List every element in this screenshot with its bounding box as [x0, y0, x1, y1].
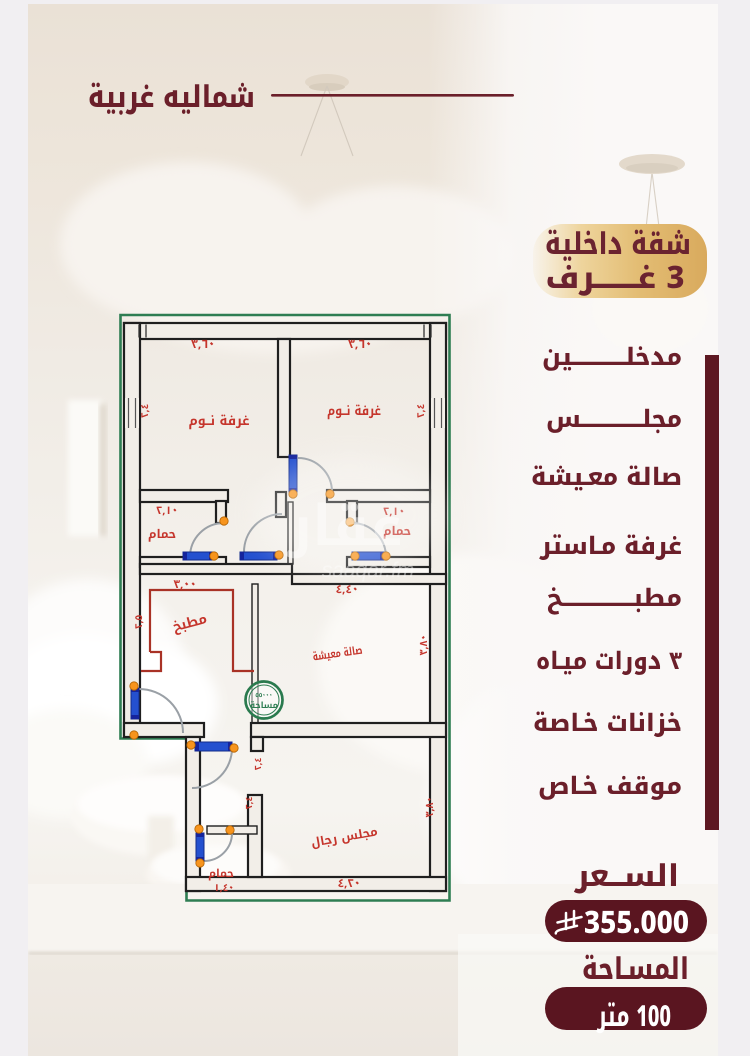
svg-text:saaqar.fm: saaqar.fm [322, 559, 415, 582]
